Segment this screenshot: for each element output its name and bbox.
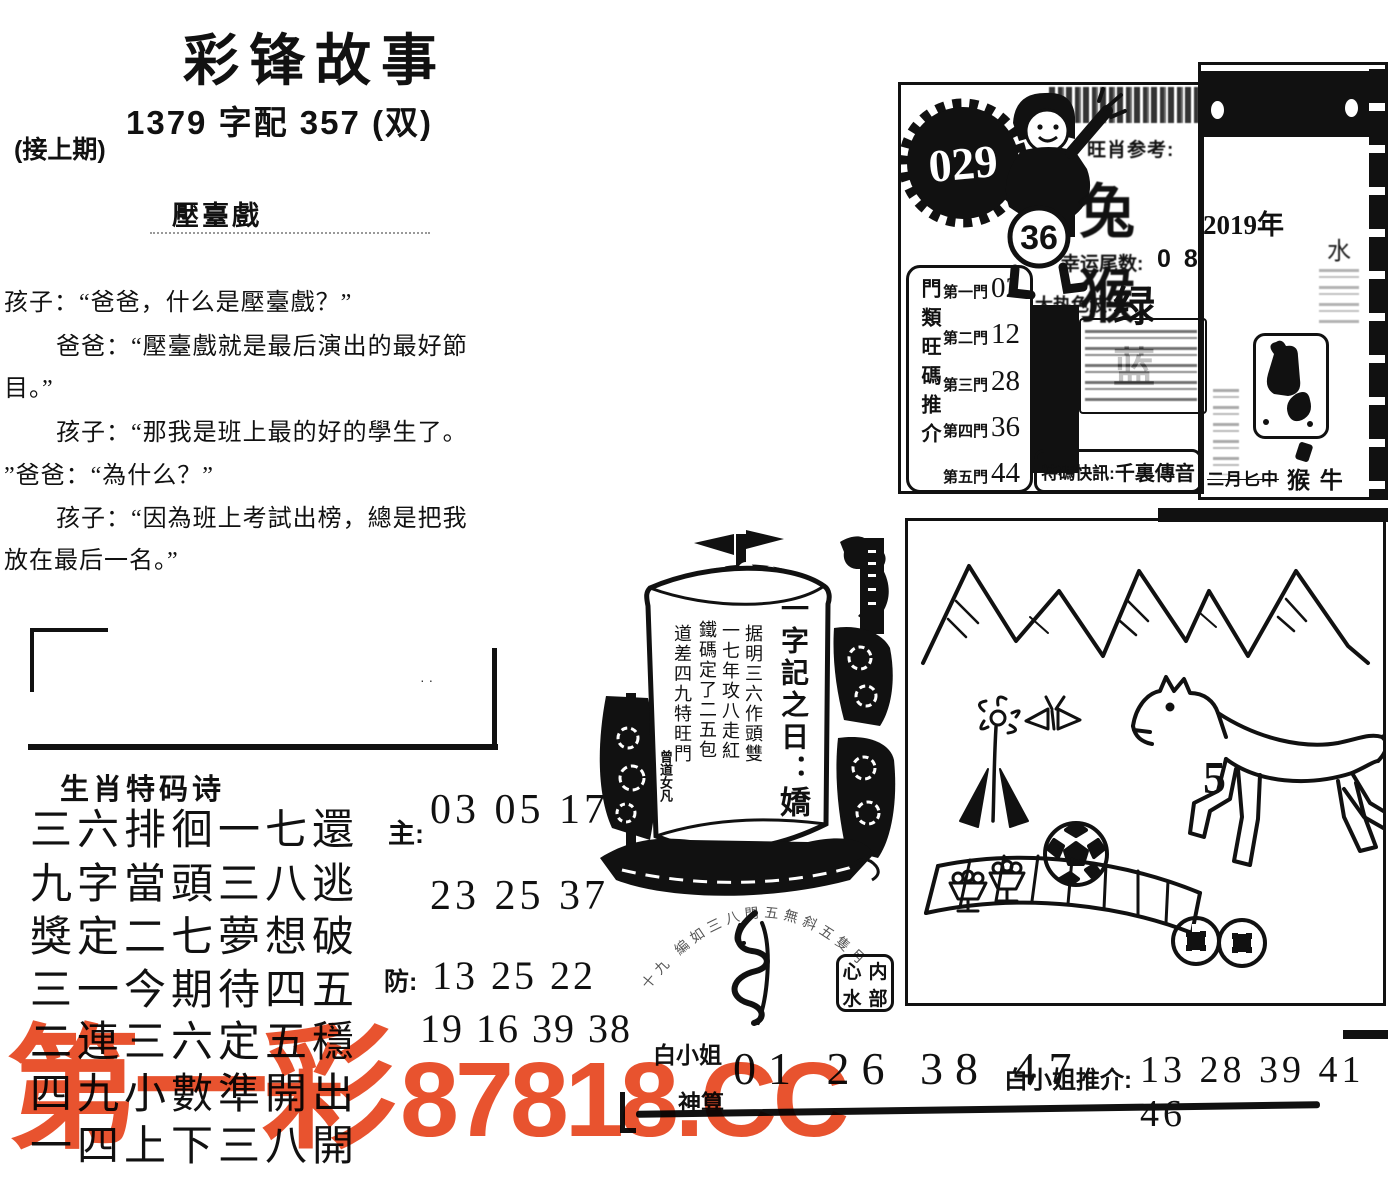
gate-label: 第四門	[943, 420, 988, 441]
flash-box: 特碼快訊: 千裏傳音	[1034, 449, 1202, 493]
calendar-panel: 2019年 水 二月匕中 猴 牛	[1198, 62, 1388, 500]
boat-flag-small-left	[694, 534, 734, 555]
story-line: 爸爸：“壓臺戲就是最后演出的最好節	[56, 326, 468, 361]
main-numbers-2: 23 25 37	[430, 872, 609, 920]
boat-sail-right-upper	[833, 627, 892, 726]
gate-row: 第四門 36	[943, 411, 1033, 444]
watermark-domain: 87818.CC	[400, 1047, 845, 1153]
striped-mat	[926, 856, 1200, 933]
tail-value: 0 8	[1157, 245, 1201, 274]
calendar-zodiac-box	[1253, 333, 1329, 439]
story-line: 放在最后一名。”	[4, 540, 179, 575]
gate-label: 第二門	[943, 327, 988, 348]
gate-label: 第三門	[943, 374, 988, 395]
tipsheet-page: 彩锋故事 1379 字配 357 (双) (接上期) 壓臺戲 孩子：“爸爸，什么…	[0, 0, 1388, 1182]
gate-row: 第一門 02	[943, 272, 1033, 305]
gates-panel-label: 門類旺碼推介	[915, 278, 944, 488]
gate-label: 第一門	[943, 281, 988, 302]
stamp-char: 内	[868, 957, 887, 984]
scroll-column: 据明三六作頭雙	[740, 624, 766, 774]
info-panel: 029 36 旺肖参考: 兔猴 幸运尾数: 0 8 大热色波: 绿 蓝	[898, 82, 1204, 494]
poem-line: 獎定二七夢想破	[30, 903, 359, 964]
calendar-smudge	[1213, 385, 1239, 475]
recommend-label: 白小姐推介:	[1004, 1060, 1132, 1095]
gates-panel: 門類旺碼推介 第一門 02 第二門 12 第三門 28 第四門 36	[906, 265, 1033, 493]
poem-line: 三六排徊一七還	[30, 796, 359, 857]
story-line: 孩子：“那我是班上最的好的學生了。	[56, 412, 468, 447]
scroll-column: 鐵碼定了二五包	[694, 620, 720, 770]
flower	[960, 697, 1028, 827]
page-title: 彩锋故事	[183, 16, 447, 97]
calendar-year: 2019年	[1203, 203, 1284, 242]
scroll-column: 一七年攻八走紅	[717, 621, 743, 771]
page-subtitle: 1379 字配 357 (双)	[126, 96, 433, 144]
gate-row: 第二門 12	[943, 318, 1033, 351]
boat-sail-left	[600, 696, 657, 840]
watermark-cjk: 第一彩	[6, 1024, 390, 1158]
calendar-bottom-right: 猴 牛	[1287, 461, 1345, 495]
story-line: 孩子：“爸爸，什么是壓臺戲？”	[4, 282, 352, 317]
insider-stamp: 心 内 水 部	[836, 954, 894, 1012]
horse-number: 5	[1203, 752, 1226, 803]
calendar-right-bar	[1369, 69, 1385, 497]
story-title: 壓臺戲	[172, 194, 262, 233]
black-block	[1033, 305, 1079, 473]
gate-value: 12	[991, 318, 1020, 351]
zodiac-label: 旺肖参考:	[1087, 135, 1174, 162]
gate-value: 44	[991, 457, 1020, 490]
signature-scribble	[700, 905, 800, 1035]
stamp-char: 部	[868, 984, 887, 1011]
scroll-seal: 曾道女凡	[656, 750, 675, 830]
binding-hole	[1211, 101, 1224, 119]
horse	[1133, 677, 1383, 865]
scroll-big-char: 嬌	[770, 786, 815, 817]
coins	[1173, 918, 1265, 966]
flash-value: 千裏傳音	[1115, 457, 1195, 486]
gate-value: 36	[991, 411, 1020, 444]
poem-line: 九字當頭三八逃	[30, 850, 359, 911]
butterfly	[1026, 697, 1080, 729]
calendar-blot	[1295, 441, 1314, 462]
blurb-box	[1079, 318, 1207, 414]
soccer-ball	[1045, 823, 1107, 885]
gate-row: 第三門 28	[943, 365, 1033, 398]
tail-label: 幸运尾数:	[1061, 249, 1143, 276]
stamp-char: 水	[842, 984, 861, 1011]
calendar-mark: 水	[1327, 231, 1351, 266]
recommend-numbers: 13 28 39 41 46	[1140, 1048, 1388, 1136]
boat-flag-small-right	[746, 530, 784, 549]
gate-row: 第五門 44	[943, 457, 1033, 490]
continued-note: (接上期)	[14, 130, 106, 166]
main-label: 主:	[388, 812, 424, 851]
story-title-underline	[150, 232, 430, 234]
guard-label: 防:	[384, 962, 417, 998]
binding-hole	[1345, 99, 1358, 117]
gate-value: 02	[991, 272, 1020, 305]
calendar-bottom-left: 二月匕中	[1207, 465, 1279, 490]
scene-illustration: 5	[905, 518, 1386, 1006]
watermark: 第一彩 87818.CC	[6, 1024, 845, 1158]
boy-number: 36	[1020, 219, 1058, 257]
main-numbers-1: 03 05 17	[430, 786, 609, 834]
gate-label: 第五門	[943, 466, 988, 487]
calendar-smudge	[1319, 265, 1359, 325]
gate-value: 28	[991, 365, 1020, 398]
story-line: ”爸爸：“為什么？”	[4, 455, 214, 490]
stamp-char: 心	[842, 957, 861, 984]
bottom-right-bar	[1343, 1030, 1388, 1039]
calendar-binding-bar	[1199, 71, 1371, 137]
guard-numbers-1: 13 25 22	[432, 952, 596, 999]
story-line: 孩子：“因為班上考試出榜，總是把我	[56, 498, 468, 533]
story-line: 目。”	[4, 368, 54, 403]
flash-label: 特碼快訊:	[1041, 459, 1115, 484]
